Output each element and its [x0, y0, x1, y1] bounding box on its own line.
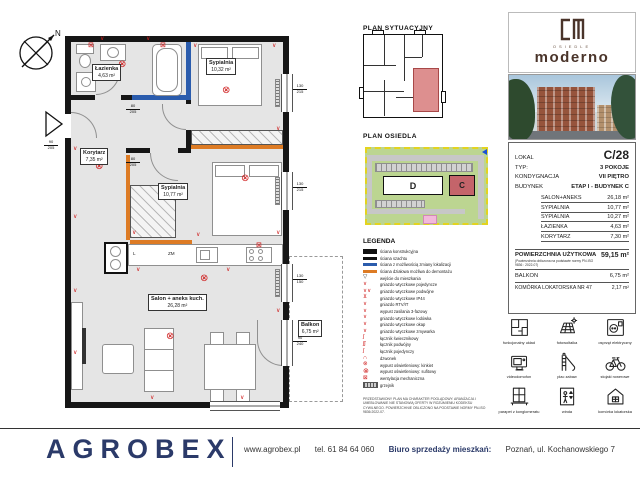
- vent-symbol: ⊠: [256, 242, 262, 249]
- switch-single-symbol: ʃ: [363, 349, 364, 355]
- window-dimension: 90240: [293, 336, 307, 346]
- room-label-corridor: Korytarz7,35 m²: [80, 148, 108, 165]
- socket-symbol: ∨: [73, 350, 77, 356]
- wall: [283, 112, 289, 172]
- fridge-circle: [110, 246, 121, 257]
- photo-building-main: [537, 87, 595, 133]
- wall: [65, 36, 71, 114]
- balcony-block: [441, 91, 446, 103]
- legend-item: ∨gniazdo wtyczkowe lodówka: [363, 315, 490, 322]
- parking-row: [375, 200, 425, 208]
- brand-logo: OSIEDLE moderno: [508, 12, 636, 73]
- card-row-typ: TYP: 3 POKOJE: [515, 165, 629, 171]
- socket-symbol: ∨: [146, 36, 150, 42]
- investment-area: [423, 215, 437, 224]
- bike-rack-icon: [605, 352, 626, 373]
- legend-item: ściana konstrukcyjna: [363, 248, 490, 255]
- feature-item: funkcjonalny układ: [496, 317, 542, 345]
- wall: [121, 95, 132, 100]
- ceiling-light-symbol: ⊗: [200, 274, 208, 284]
- vent-symbol: ⊠: [160, 42, 166, 49]
- vent-symbol: ⊠: [88, 42, 94, 49]
- washbasin-bowl: [107, 47, 119, 58]
- sofa-line: [144, 349, 174, 350]
- dishwasher-label: ZM: [168, 251, 175, 256]
- door-dimension: 90205: [44, 140, 58, 150]
- wall: [186, 100, 191, 104]
- highlighted-unit: [413, 68, 439, 112]
- radiator: [275, 79, 280, 107]
- moderno-logo-icon: [555, 16, 589, 43]
- wall-shaft-symbol: [363, 257, 377, 260]
- entrance-icon: [44, 110, 64, 138]
- removable-wall: [191, 145, 283, 149]
- window: [281, 172, 293, 210]
- card-row-lokal: LOKAL C/28: [515, 148, 629, 162]
- footer-divider: [232, 437, 233, 467]
- hob-burner: [258, 249, 263, 254]
- feature-item: parapet z konglomeratu: [496, 386, 542, 414]
- sofa-line: [144, 370, 174, 371]
- legend-item: ▽wejście do mieszkania: [363, 275, 490, 282]
- legend-item: ⊗wypust oświetleniowy: kinkiet: [363, 362, 490, 369]
- ceiling-light-symbol: ⊗: [166, 332, 174, 342]
- card-row-kondygnacja: KONDYGNACJA VII PIĘTRO: [515, 174, 629, 180]
- parking-row: [375, 163, 473, 172]
- partition-line: [364, 65, 396, 66]
- balcony-area-row: BALKON 6,75 m²: [515, 269, 629, 279]
- window: [281, 74, 293, 112]
- feature-item: winda: [544, 386, 590, 414]
- room-label-bedroom2: Sypialnia10,77 m²: [158, 183, 188, 200]
- balcony-block: [414, 30, 426, 35]
- partition-line: [384, 35, 385, 65]
- radiator: [275, 269, 280, 297]
- door-dimension: 80205: [126, 157, 140, 167]
- socket-symbol: ∨: [150, 395, 154, 401]
- socket-symbol: ∨: [100, 36, 104, 42]
- compass-icon: N: [12, 26, 64, 72]
- hob-burner: [249, 249, 254, 254]
- balcony-block: [372, 30, 384, 35]
- estate-plan-title: PLAN OSIEDLA: [363, 133, 417, 140]
- ceiling-light-symbol: ⊗: [222, 86, 230, 96]
- usable-area-row: POWIERZCHNIA UŻYTKOWA (Powierzchnia obli…: [515, 249, 629, 267]
- tv: [82, 328, 86, 364]
- agrobex-logo: AGROBEX: [46, 434, 232, 465]
- socket-symbol: ∨: [276, 230, 280, 236]
- window-dimension: 130215: [293, 182, 307, 192]
- legend-item: ʃłącznik świecznikowy: [363, 335, 490, 342]
- balcony-door: [281, 320, 293, 366]
- movable-wall: [186, 42, 191, 95]
- footer: AGROBEX www.agrobex.pl tel. 61 84 64 060…: [0, 428, 640, 481]
- legend-item: ∨gniazdo wtyczkowe zmywarka: [363, 328, 490, 335]
- feature-item: fotowoltaika: [544, 317, 590, 345]
- unit-number: C/28: [604, 148, 629, 162]
- legend-title: LEGENDA: [363, 238, 490, 245]
- door-dimension: 80205: [126, 104, 140, 114]
- armchair: [102, 344, 134, 374]
- wall: [126, 148, 150, 153]
- window: [210, 401, 280, 411]
- socket-symbol: ∨: [276, 308, 280, 314]
- legend: LEGENDA ściana konstrukcyjna ściana szac…: [363, 238, 490, 388]
- floor-plan: N: [0, 0, 345, 420]
- wall: [283, 36, 289, 74]
- apartment-card-page: { "brand": {"estate": "OSIEDLE", "name":…: [0, 0, 640, 480]
- partition-line: [396, 97, 413, 98]
- fridge-circle: [110, 259, 121, 270]
- window-dimension: 130150: [293, 274, 307, 284]
- area-row: KORYTARZ7,30 m²: [541, 232, 629, 242]
- usable-area-value: 59,15 m²: [601, 252, 629, 267]
- area-row: ŁAZIENKA4,63 m²: [541, 222, 629, 232]
- feature-item: osprzęt elektryczny: [592, 317, 638, 345]
- building-d: D: [383, 176, 443, 195]
- site-plan: [363, 34, 443, 118]
- wardrobe: [191, 130, 283, 145]
- mech-vent-symbol: ⊠: [363, 376, 368, 382]
- card-row-budynek: BUDYNEK ETAP I - BUDYNEK C: [515, 184, 629, 190]
- footer-phone: tel. 61 84 64 060: [315, 445, 375, 454]
- socket-symbol: ∨: [240, 395, 244, 401]
- feature-item: plac zabaw: [544, 352, 590, 380]
- legend-item: ⊠wentylacja mechaniczna: [363, 375, 490, 382]
- legend-item: ∨wypust zasilania 3-fazowy: [363, 308, 490, 315]
- legend-item: ∩dzwonek: [363, 355, 490, 362]
- road: [367, 155, 372, 214]
- room-label-bathroom: Łazienka4,63 m²: [92, 64, 121, 81]
- feature-item: stojaki rowerowe: [592, 352, 638, 380]
- legend-item: grzejnik: [363, 382, 490, 389]
- floorplan-icon: [509, 317, 530, 338]
- window: [281, 264, 293, 302]
- socket-symbol: ∨: [136, 267, 140, 273]
- entrance-arrow: [482, 149, 487, 155]
- electric-fittings-icon: [605, 317, 626, 338]
- road: [367, 155, 484, 161]
- socket-symbol: ∨: [73, 214, 77, 220]
- window-sill-icon: [509, 386, 530, 407]
- wall: [65, 95, 95, 100]
- wall-removable-symbol: [363, 270, 377, 273]
- socket-symbol: ∨: [196, 232, 200, 238]
- area-row: SYPIALNIA10,77 m²: [541, 203, 629, 213]
- storage-room-icon: [605, 386, 626, 407]
- video-intercom-icon: [509, 352, 530, 373]
- wall: [65, 36, 289, 42]
- footer-website[interactable]: www.agrobex.pl: [244, 445, 300, 454]
- partition-line: [384, 80, 385, 116]
- feature-item: komórka lokatorska: [592, 386, 638, 414]
- compass-north-label: N: [55, 29, 61, 38]
- socket-symbol: ∨: [276, 126, 280, 132]
- partition-line: [404, 57, 422, 58]
- wall-structural-symbol: [363, 249, 377, 254]
- legend-item: ʃłącznik pojedynczy: [363, 348, 490, 355]
- fridge-label: L: [133, 251, 136, 256]
- bathtub-inner: [156, 48, 178, 92]
- legend-item: ściana działowa możliwa do demontażu: [363, 268, 490, 275]
- socket-symbol: ∨: [272, 43, 276, 49]
- unit-info-card: LOKAL C/28 TYP: 3 POKOJE KONDYGNACJA VII…: [508, 142, 636, 314]
- building-c-label: C: [459, 181, 465, 190]
- radiator-symbol: [363, 382, 378, 388]
- socket-symbol: ∨: [73, 146, 77, 152]
- room-label-living: Salon + aneks kuch.26,28 m²: [148, 294, 207, 311]
- socket-symbol: ∨: [193, 43, 197, 49]
- legend-item: ściana z możliwością zmiany lokalizacji: [363, 261, 490, 268]
- playground-icon: [557, 352, 578, 373]
- features-grid: funkcjonalny układ fotowoltaika osprzęt …: [496, 317, 638, 414]
- solar-panel-icon: [557, 317, 578, 338]
- dining-table: [204, 344, 256, 390]
- legend-item: ∨gniazdo RTV/IT: [363, 302, 490, 309]
- ceiling-light-symbol: ⊗: [241, 174, 249, 184]
- wall: [178, 148, 191, 153]
- socket-symbol: ∨: [132, 230, 136, 236]
- window-dimension: 130215: [293, 84, 307, 94]
- wall-movable-symbol: [363, 263, 377, 266]
- footer-office-label: Biuro sprzedaży mieszkań:: [389, 445, 492, 454]
- socket-hood-symbol: ∨: [363, 322, 367, 328]
- legend-item: ⊗wypust oświetleniowy: sufitowy: [363, 368, 490, 375]
- legend-item: ∨∨gniazdo wtyczkowe podwójne: [363, 288, 490, 295]
- legend-item: ∨gniazdo wtyczkowe okap: [363, 322, 490, 329]
- wall-lamp-symbol: ⊗: [363, 362, 368, 368]
- building-c: C: [449, 175, 475, 196]
- photo-tree-left: [508, 79, 535, 140]
- room-label-bedroom1: Sypialnia10,32 m²: [206, 58, 236, 75]
- toilet-bowl: [79, 54, 91, 68]
- feature-item: videodomofon: [496, 352, 542, 380]
- socket-symbol: ∨: [226, 267, 230, 273]
- socket-symbol: ∨: [73, 288, 77, 294]
- road: [367, 209, 465, 214]
- brand-name: moderno: [535, 50, 610, 65]
- area-row: SYPIALNIA10,27 m²: [541, 213, 629, 223]
- partition-line: [422, 35, 423, 57]
- hob-burner: [249, 256, 254, 261]
- legend-item: ⊻gniazdo wtyczkowe IP44: [363, 295, 490, 302]
- elevator-icon: [557, 386, 578, 407]
- partition-line: [404, 35, 405, 81]
- legend-item: ściana szachtu: [363, 255, 490, 262]
- balcony-block: [359, 87, 364, 99]
- storage-area-row: KOMÓRKA LOKATORSKA NR 47 2,17 m²: [515, 282, 629, 292]
- switch-double-symbol: ʃʃ: [363, 342, 366, 348]
- building-d-label: D: [410, 181, 417, 191]
- legend-item: ʃʃłącznik podwójny: [363, 342, 490, 349]
- pillow: [249, 165, 279, 177]
- kitchen-sink-bowl: [200, 250, 210, 260]
- building-photo: [508, 74, 636, 140]
- area-row: SALON+ANEKS26,18 m²: [541, 194, 629, 204]
- road: [478, 155, 484, 219]
- estate-plan: D C: [365, 147, 488, 225]
- socket-rtv-symbol: ∨: [363, 302, 367, 308]
- legend-item: ∨gniazdo wtyczkowe pojedyncze: [363, 281, 490, 288]
- footer-office-address: Poznań, ul. Kochanowskiego 7: [506, 445, 615, 454]
- hob-burner: [258, 256, 263, 261]
- footer-contact: www.agrobex.pl tel. 61 84 64 060 Biuro s…: [244, 445, 627, 454]
- room-areas-table: SALON+ANEKS26,18 m² SYPIALNIA10,77 m² SY…: [541, 194, 629, 242]
- washing-machine-drum: [81, 77, 91, 87]
- radiator: [275, 177, 280, 205]
- disclaimer-text: PRZEDSTAWIONY PLAN MA CHARAKTER POGLĄDOW…: [363, 397, 489, 415]
- socket-single-symbol: ∨: [363, 282, 367, 288]
